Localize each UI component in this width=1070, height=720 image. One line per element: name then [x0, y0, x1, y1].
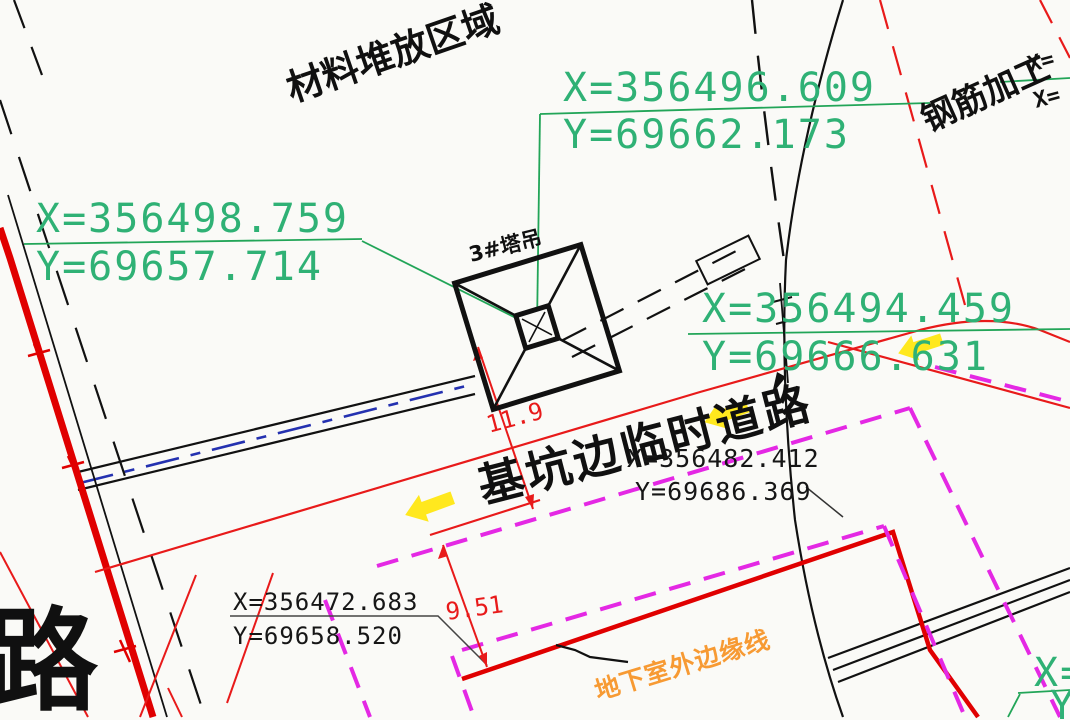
coordinate-label-top: X=356496.609 Y=69662.173 — [563, 65, 876, 158]
basement-label-leader — [556, 645, 628, 662]
basement-edge-red-line — [462, 532, 978, 717]
coordinate-leader-lines — [24, 78, 1070, 717]
coordinate-label-bottom: X=356472.683 Y=69658.520 — [233, 588, 418, 650]
coordinate-x: X=356498.759 — [36, 196, 349, 242]
coordinate-x: X=356496.609 — [563, 65, 876, 111]
red-dashed-boundary — [880, 0, 965, 305]
basement-edge-label: 地下室外边缘线 — [591, 625, 774, 706]
direction-arrow-icon — [400, 484, 457, 528]
coordinate-label-corner-br: X= Y= — [1034, 650, 1070, 720]
coordinate-y: Y=69666.631 — [702, 334, 989, 380]
dimension-value: 9.51 — [444, 590, 505, 626]
cad-site-plan: 11.9 9.51 材料堆放区域 钢筋加工 3#塔吊 基坑边临时道路 地下室外边… — [0, 0, 1070, 720]
coordinate-x: X=356482.412 — [627, 444, 820, 473]
cad-drawing-surface: 11.9 9.51 材料堆放区域 钢筋加工 3#塔吊 基坑边临时道路 地下室外边… — [0, 0, 1070, 720]
material-area-label: 材料堆放区域 — [281, 0, 505, 111]
svg-text:Y=: Y= — [1050, 683, 1070, 720]
road-char-label: 路 — [0, 597, 99, 720]
road-centerline-blue — [80, 385, 470, 483]
svg-text:X=: X= — [1025, 47, 1057, 78]
coordinate-y: Y=69658.520 — [233, 622, 403, 650]
coordinate-y: Y=69686.369 — [635, 477, 812, 506]
coordinate-y: Y=69662.173 — [563, 112, 850, 158]
coordinate-x: X=356472.683 — [233, 588, 418, 616]
coordinate-y: Y=69657.714 — [36, 244, 323, 290]
svg-text:X=: X= — [1031, 83, 1063, 114]
coordinate-x: X=356494.459 — [702, 286, 1015, 332]
